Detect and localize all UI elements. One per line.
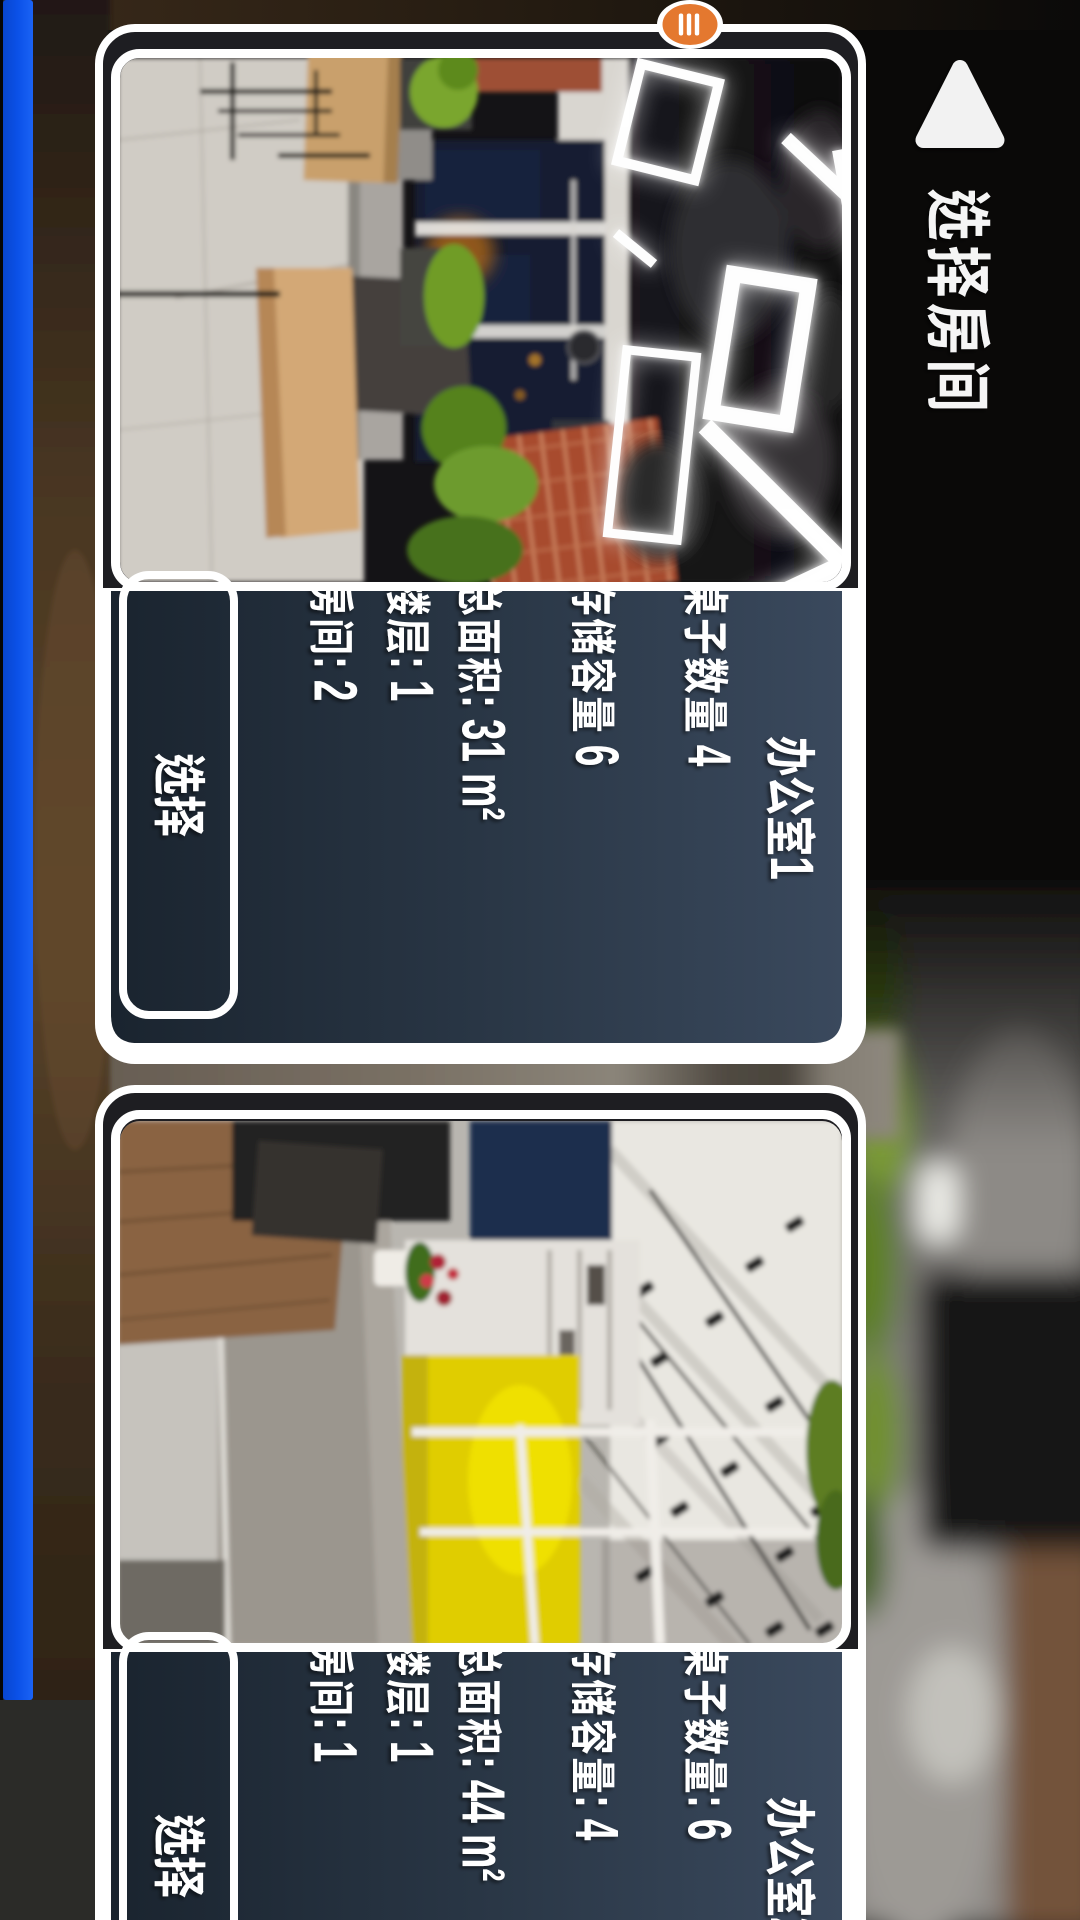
svg-text:6: 6 [563, 745, 631, 767]
svg-text:: 44 m²: : 44 m² [449, 1756, 517, 1881]
svg-text:: 1: : 1 [378, 1717, 446, 1762]
svg-text:: 2: : 2 [301, 656, 369, 701]
svg-text:: 6: : 6 [675, 1795, 743, 1840]
svg-text:: 31 m²: : 31 m² [449, 695, 517, 820]
svg-text:1: 1 [757, 856, 825, 880]
svg-text:: 1: : 1 [378, 656, 446, 701]
svg-text:: 4: : 4 [563, 1795, 631, 1841]
svg-text:4: 4 [675, 745, 743, 767]
svg-text:: 1: : 1 [301, 1717, 369, 1762]
